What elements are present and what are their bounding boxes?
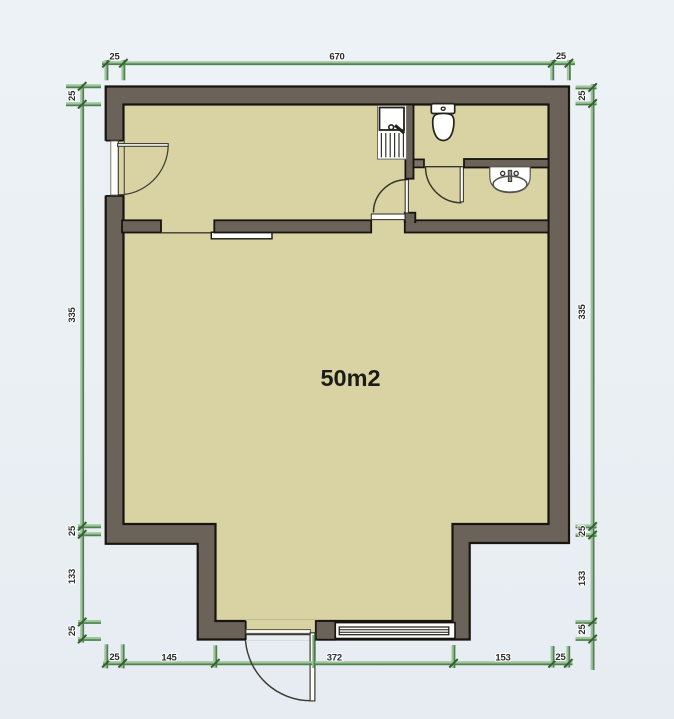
svg-text:25: 25 <box>67 90 78 101</box>
svg-text:133: 133 <box>67 569 78 584</box>
svg-text:335: 335 <box>67 306 78 322</box>
svg-text:25: 25 <box>556 51 567 62</box>
svg-text:25: 25 <box>67 625 78 636</box>
svg-text:25: 25 <box>577 624 588 635</box>
svg-text:25: 25 <box>67 525 78 536</box>
svg-text:372: 372 <box>327 653 342 664</box>
svg-text:25: 25 <box>555 652 566 663</box>
svg-text:25: 25 <box>577 525 588 536</box>
svg-text:25: 25 <box>109 51 120 62</box>
svg-text:670: 670 <box>329 51 344 62</box>
svg-text:50m2: 50m2 <box>320 365 380 391</box>
svg-text:25: 25 <box>109 652 120 663</box>
svg-text:25: 25 <box>577 90 588 101</box>
svg-text:153: 153 <box>495 653 510 664</box>
svg-text:335: 335 <box>577 303 588 319</box>
svg-text:145: 145 <box>161 653 177 664</box>
svg-text:133: 133 <box>577 571 588 586</box>
